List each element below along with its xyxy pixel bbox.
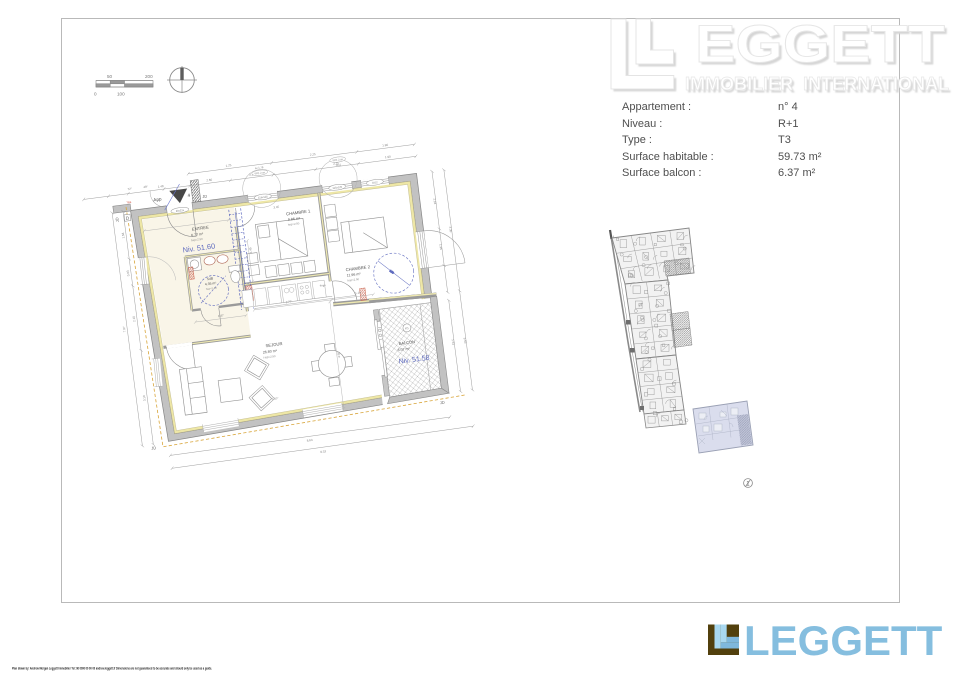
svg-text:2.10: 2.10	[132, 315, 137, 322]
svg-text:0.93: 0.93	[126, 270, 131, 277]
svg-text:3.55: 3.55	[463, 337, 468, 344]
svg-text:1.90: 1.90	[382, 143, 389, 148]
svg-text:1: 1	[746, 481, 750, 487]
svg-text:2.77: 2.77	[285, 299, 292, 304]
svg-text:EGGETT: EGGETT	[695, 15, 945, 74]
svg-text:200: 200	[145, 74, 153, 79]
svg-text:1.35: 1.35	[438, 244, 443, 251]
svg-text:1.58: 1.58	[121, 232, 126, 239]
svg-text:50: 50	[107, 74, 113, 79]
svg-text:1.48: 1.48	[157, 184, 164, 189]
svg-text:Plan drawn by: Andrew Morgan: Plan drawn by: Andrew Morgan Leggett Imm…	[12, 667, 212, 671]
svg-text:7.97: 7.97	[122, 326, 127, 333]
svg-text:1.10°: 1.10°	[272, 396, 279, 401]
svg-text:3.10: 3.10	[142, 395, 147, 402]
svg-text:2.18: 2.18	[432, 198, 437, 205]
svg-text:Frigo: Frigo	[320, 283, 327, 288]
svg-text:100: 100	[117, 92, 125, 97]
svg-text:2.25: 2.25	[310, 152, 317, 157]
svg-text:9.33: 9.33	[320, 449, 327, 454]
svg-text:JD: JD	[114, 217, 120, 223]
svg-text:1.90: 1.90	[385, 155, 392, 160]
svg-text:4.30: 4.30	[448, 226, 453, 233]
svg-text:IMMOBILIER INTERNATIONAL: IMMOBILIER INTERNATIONAL	[685, 73, 949, 94]
svg-text:8.63: 8.63	[306, 438, 313, 443]
svg-text:App: App	[153, 196, 162, 202]
svg-text:JD: JD	[151, 445, 157, 451]
svg-text:3.45: 3.45	[273, 205, 280, 210]
svg-text:2.60: 2.60	[206, 178, 213, 183]
svg-text:1.93: 1.93	[451, 339, 456, 346]
svg-text:DG2: DG2	[335, 162, 341, 167]
svg-text:49°: 49°	[143, 184, 149, 189]
svg-text:0: 0	[94, 92, 97, 97]
svg-text:1.45: 1.45	[248, 247, 253, 254]
svg-text:TBa: TBa	[126, 200, 132, 205]
svg-text:1.19: 1.19	[355, 290, 362, 295]
svg-text:1.87: 1.87	[218, 313, 225, 318]
svg-text:LEGGETT: LEGGETT	[744, 620, 943, 660]
svg-text:4: 4	[187, 193, 191, 198]
svg-text:1.25: 1.25	[225, 163, 232, 168]
svg-text:4.50: 4.50	[336, 351, 341, 358]
svg-text:JD: JD	[440, 400, 446, 406]
svg-text:72°: 72°	[127, 187, 133, 192]
svg-text:JD: JD	[202, 194, 208, 200]
